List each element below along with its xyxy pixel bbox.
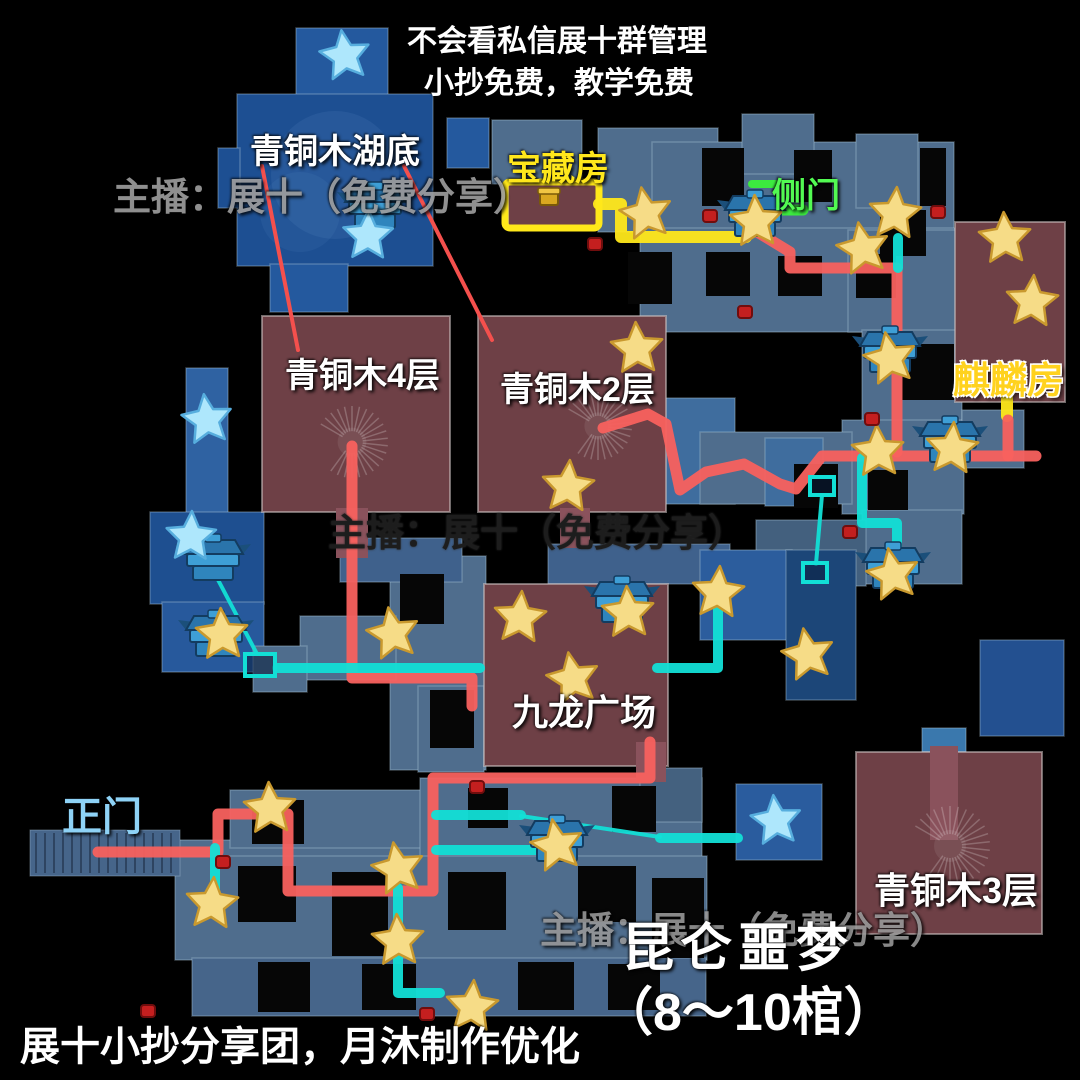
watermark-top: 主播：展十（免费分享）: [113, 166, 531, 221]
map-block: [980, 640, 1064, 736]
map-block: [447, 118, 489, 168]
map-hole: [628, 252, 672, 304]
item-dot: [470, 781, 484, 793]
map-hole: [612, 786, 656, 832]
map-hole: [258, 962, 310, 1012]
gold-chest-icon: [538, 188, 560, 205]
item-dot: [931, 206, 945, 218]
teleport-marker: [810, 477, 834, 495]
teleport-marker: [245, 654, 275, 676]
map-block: [856, 134, 918, 208]
label-main-gate: 正门: [62, 784, 142, 842]
item-dot: [703, 210, 717, 222]
label-bronze-lake: 青铜木湖底: [250, 124, 420, 173]
kunlun-map-screenshot: 不会看私信展十群管理 小抄免费，教学免费 主播：展十（免费分享） 主播：展十（免…: [0, 0, 1080, 1080]
map-block: [186, 368, 228, 518]
item-dot: [588, 238, 602, 250]
label-treasure-room: 宝藏房: [507, 141, 609, 190]
item-dot: [865, 413, 879, 425]
credit-line: 展十小抄分享团，月沐制作优化: [20, 1014, 580, 1072]
map-title-coffins: （8～10棺）: [601, 970, 896, 1045]
header-notice-line1: 不会看私信展十群管理: [407, 16, 707, 60]
header-notice-line2: 小抄免费，教学免费: [424, 58, 694, 102]
label-bronze-4f: 青铜木4层: [285, 348, 440, 397]
watermark-middle: 主播：展十（免费分享）: [328, 502, 746, 557]
map-hole: [362, 964, 416, 1010]
map-hole: [868, 470, 908, 510]
label-bronze-3f: 青铜木3层: [874, 862, 1038, 914]
map-hole: [706, 252, 750, 296]
label-bronze-2f: 青铜木2层: [500, 362, 655, 411]
label-jiulong-plaza: 九龙广场: [512, 684, 656, 736]
map-hole: [332, 872, 388, 956]
map-hole: [448, 872, 506, 930]
teleport-marker: [803, 563, 827, 582]
item-dot: [843, 526, 857, 538]
item-dot: [738, 306, 752, 318]
label-qilin-room: 麒麟房: [953, 350, 1064, 404]
map-hole: [400, 574, 444, 624]
map-hole: [920, 148, 946, 206]
item-dot: [216, 856, 230, 868]
map-hole: [518, 962, 574, 1010]
label-side-door: 侧门: [772, 168, 840, 217]
